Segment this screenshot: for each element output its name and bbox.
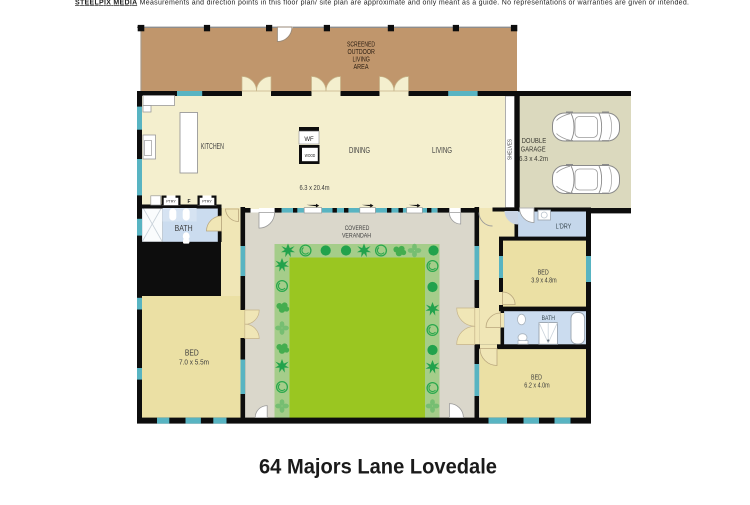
- svg-text:SHELVES: SHELVES: [508, 138, 514, 160]
- svg-text:L'DRY: L'DRY: [556, 223, 572, 230]
- svg-text:F: F: [187, 199, 190, 205]
- svg-text:7.0 x 5.5m: 7.0 x 5.5m: [179, 357, 209, 366]
- svg-text:6.2 x 4.0m: 6.2 x 4.0m: [524, 383, 550, 390]
- svg-text:BATH: BATH: [175, 224, 193, 233]
- svg-text:VERANDAH: VERANDAH: [342, 233, 371, 240]
- svg-text:DOUBLE: DOUBLE: [522, 136, 547, 145]
- svg-text:BATH: BATH: [542, 315, 555, 322]
- svg-text:6.3 x 4.2m: 6.3 x 4.2m: [519, 154, 548, 163]
- svg-text:DINING: DINING: [349, 146, 370, 155]
- svg-text:PTRY: PTRY: [166, 199, 176, 204]
- svg-text:3.9 x 4.8m: 3.9 x 4.8m: [531, 278, 557, 285]
- svg-text:AREA: AREA: [354, 62, 370, 71]
- svg-text:GARAGE: GARAGE: [521, 145, 546, 154]
- svg-text:BED: BED: [185, 349, 199, 358]
- svg-text:6.3 x 20.4m: 6.3 x 20.4m: [300, 183, 330, 192]
- svg-text:PTRY: PTRY: [202, 199, 212, 204]
- svg-text:STEELPIX MEDIA Measurements an: STEELPIX MEDIA Measurements and directio…: [75, 0, 689, 6]
- svg-text:BED: BED: [531, 374, 542, 381]
- svg-text:KITCHEN: KITCHEN: [201, 142, 224, 151]
- svg-text:LIVING: LIVING: [432, 146, 452, 155]
- svg-text:COVERED: COVERED: [345, 225, 370, 232]
- svg-text:WOOD: WOOD: [305, 153, 316, 158]
- svg-text:64 Majors Lane Lovedale: 64 Majors Lane Lovedale: [259, 456, 497, 479]
- svg-text:WF: WF: [304, 137, 314, 143]
- svg-text:BED: BED: [538, 269, 549, 276]
